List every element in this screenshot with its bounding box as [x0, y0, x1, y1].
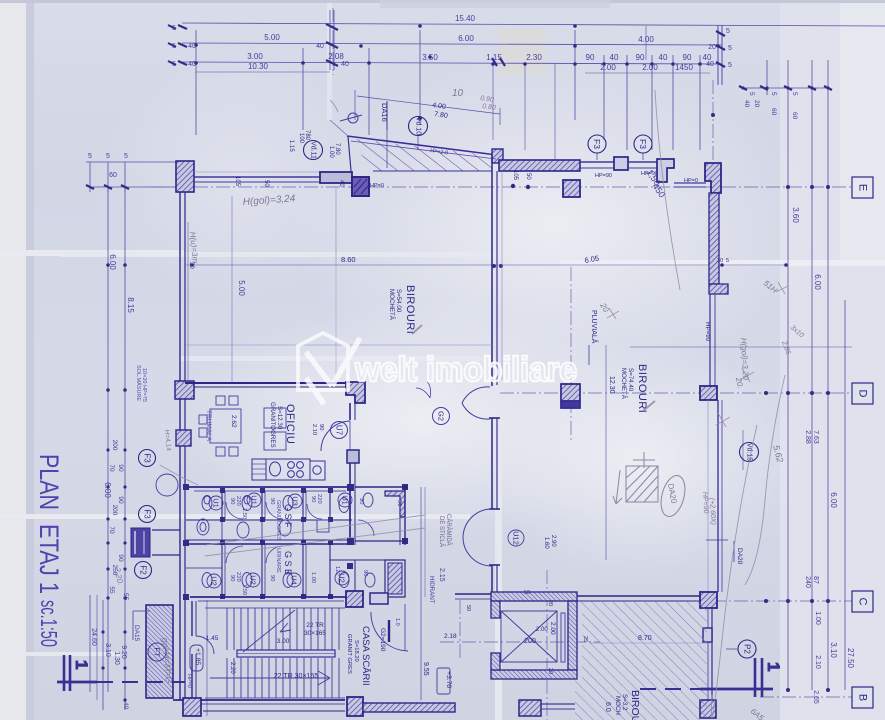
- svg-text:10.30: 10.30: [248, 62, 269, 71]
- svg-text:1.45: 1.45: [206, 635, 219, 642]
- svg-text:40: 40: [338, 180, 344, 187]
- svg-text:sc.1:50: sc.1:50: [36, 600, 62, 647]
- svg-text:20: 20: [547, 668, 553, 674]
- svg-text:8.60: 8.60: [341, 255, 356, 264]
- svg-text:F3: F3: [638, 139, 648, 149]
- svg-text:6.00: 6.00: [813, 274, 822, 290]
- svg-text:F2: F2: [139, 565, 148, 575]
- svg-text:220: 220: [235, 572, 241, 582]
- svg-text:7.80: 7.80: [334, 143, 340, 155]
- svg-text:1: 1: [72, 660, 91, 669]
- svg-text:90: 90: [396, 500, 402, 506]
- svg-text:22 TR 30×165: 22 TR 30×165: [274, 673, 319, 680]
- svg-text:DE STICLĂ: DE STICLĂ: [438, 516, 445, 547]
- svg-text:100: 100: [298, 133, 304, 144]
- svg-text:S=74.40: S=74.40: [627, 368, 634, 392]
- svg-text:S=54.00: S=54.00: [395, 289, 402, 313]
- svg-text:DA20: DA20: [736, 548, 743, 565]
- svg-text:90: 90: [358, 498, 364, 504]
- svg-text:90: 90: [117, 464, 124, 472]
- svg-text:2.88: 2.88: [804, 430, 811, 444]
- svg-text:3.10: 3.10: [104, 643, 111, 657]
- svg-text:5: 5: [791, 92, 798, 96]
- svg-text:BIROURI: BIROURI: [404, 285, 416, 334]
- svg-text:welt imobiliare: welt imobiliare: [354, 351, 577, 389]
- svg-text:40: 40: [188, 61, 196, 68]
- svg-text:MOCH: MOCH: [614, 696, 621, 715]
- svg-text:200: 200: [111, 440, 118, 451]
- svg-text:BIROURI: BIROURI: [629, 690, 641, 720]
- svg-text:HP=90: HP=90: [704, 322, 711, 342]
- svg-text:CĂRĂMIDĂ: CĂRĂMIDĂ: [445, 514, 452, 546]
- svg-text:D: D: [857, 390, 869, 398]
- svg-text:2.20: 2.20: [229, 662, 235, 674]
- svg-text:FT: FT: [153, 647, 162, 657]
- svg-text:90: 90: [586, 53, 595, 62]
- svg-text:5: 5: [124, 153, 128, 160]
- svg-text:HP=90: HP=90: [701, 492, 709, 514]
- svg-text:50: 50: [263, 180, 269, 187]
- svg-text:8.15: 8.15: [126, 297, 135, 313]
- svg-text:U1: U1: [212, 498, 221, 508]
- svg-text:PLAN: PLAN: [34, 454, 64, 510]
- svg-text:HP=0: HP=0: [684, 178, 698, 184]
- svg-text:2.90: 2.90: [550, 535, 556, 547]
- svg-text:U1: U1: [341, 495, 350, 505]
- svg-text:55: 55: [122, 593, 129, 601]
- svg-text:U2: U2: [249, 575, 258, 585]
- svg-text:C: C: [857, 598, 869, 606]
- svg-text:5: 5: [106, 153, 110, 160]
- svg-text:6.00: 6.00: [108, 254, 117, 270]
- svg-text:1.00: 1.00: [328, 146, 334, 158]
- svg-text:2.00: 2.00: [549, 622, 556, 635]
- svg-text:15.40: 15.40: [455, 14, 476, 23]
- svg-text:U4: U4: [290, 575, 299, 585]
- svg-text:2.15: 2.15: [438, 568, 445, 582]
- svg-text:40: 40: [743, 100, 750, 108]
- svg-text:60: 60: [791, 112, 798, 120]
- svg-text:U12: U12: [512, 531, 521, 545]
- svg-text:2.10: 2.10: [311, 424, 317, 435]
- svg-text:2.00: 2.00: [600, 63, 616, 72]
- svg-text:90: 90: [229, 498, 235, 504]
- svg-text:40: 40: [659, 53, 668, 62]
- svg-text:MOCHETĂ: MOCHETĂ: [620, 368, 627, 400]
- svg-text:DA15: DA15: [133, 625, 140, 642]
- svg-text:8.70: 8.70: [638, 635, 652, 642]
- svg-text:3.60: 3.60: [791, 207, 800, 223]
- svg-text:CASA SCĂRII: CASA SCĂRII: [360, 626, 371, 686]
- svg-text:70: 70: [108, 464, 115, 472]
- svg-text:Vd.11: Vd.11: [310, 141, 317, 159]
- svg-text:1.15: 1.15: [486, 53, 502, 62]
- svg-text:5: 5: [728, 62, 732, 69]
- svg-text:1.00: 1.00: [310, 572, 316, 583]
- svg-text:HP=0: HP=0: [370, 183, 384, 189]
- svg-text:122: 122: [334, 566, 340, 576]
- svg-text:10×20 HP=75: 10×20 HP=75: [141, 368, 147, 402]
- svg-text:90: 90: [318, 424, 324, 430]
- svg-text:S=12.30: S=12.30: [276, 406, 283, 430]
- svg-text:2.08: 2.08: [328, 52, 344, 61]
- svg-text:40: 40: [706, 61, 714, 68]
- svg-text:30×165: 30×165: [304, 630, 326, 637]
- svg-text:70: 70: [108, 526, 115, 534]
- svg-text:ETAJ 1: ETAJ 1: [34, 524, 64, 594]
- svg-text:S=3.2: S=3.2: [621, 694, 628, 711]
- svg-text:9.55: 9.55: [422, 662, 429, 676]
- svg-text:90: 90: [117, 554, 124, 562]
- svg-text:40: 40: [610, 53, 619, 62]
- svg-text:2.62: 2.62: [230, 415, 237, 428]
- svg-text:220: 220: [235, 496, 241, 506]
- svg-text:105: 105: [234, 176, 240, 187]
- svg-text:OFICIU: OFICIU: [284, 404, 296, 444]
- svg-text:Vd.10: Vd.10: [415, 117, 422, 135]
- svg-text:6.00: 6.00: [458, 34, 474, 43]
- svg-text:30: 30: [717, 258, 723, 264]
- svg-text:90: 90: [269, 575, 275, 581]
- svg-text:5: 5: [88, 153, 92, 160]
- svg-text:87: 87: [812, 576, 819, 584]
- svg-text:50: 50: [524, 590, 530, 596]
- svg-text:1.50: 1.50: [241, 508, 247, 519]
- svg-text:20: 20: [753, 100, 760, 108]
- svg-text:7.63: 7.63: [812, 430, 819, 444]
- svg-text:B: B: [857, 694, 869, 701]
- svg-text:55: 55: [108, 586, 115, 594]
- svg-text:+3.70: +3.70: [445, 671, 452, 688]
- svg-text:5: 5: [726, 258, 729, 264]
- svg-text:40: 40: [188, 43, 196, 50]
- svg-text:10: 10: [452, 88, 464, 99]
- svg-text:27.50: 27.50: [846, 648, 855, 669]
- svg-text:2.10: 2.10: [814, 655, 821, 669]
- svg-text:5.00: 5.00: [237, 280, 246, 296]
- svg-text:6.00: 6.00: [103, 482, 112, 498]
- svg-text:URINARE: URINARE: [275, 548, 281, 573]
- svg-text:1.15: 1.15: [288, 140, 294, 152]
- svg-text:90: 90: [683, 53, 692, 62]
- svg-text:G2: G2: [437, 411, 446, 421]
- svg-text:4.00: 4.00: [638, 35, 654, 44]
- svg-text:P2: P2: [743, 644, 752, 654]
- svg-text:40: 40: [341, 61, 349, 68]
- svg-text:F3: F3: [143, 453, 152, 463]
- svg-text:2.18: 2.18: [444, 633, 457, 640]
- svg-text:50: 50: [465, 605, 471, 611]
- svg-text:HP=0: HP=0: [186, 674, 192, 688]
- svg-text:F3: F3: [143, 509, 152, 519]
- svg-text:E: E: [857, 184, 869, 191]
- svg-text:780: 780: [304, 130, 310, 141]
- svg-text:MOCHETĂ: MOCHETĂ: [388, 289, 395, 321]
- svg-text:90: 90: [117, 496, 124, 504]
- svg-text:3.00: 3.00: [247, 52, 263, 61]
- svg-text:22 TR: 22 TR: [306, 622, 324, 629]
- svg-text:240: 240: [804, 576, 811, 588]
- svg-text:200: 200: [111, 505, 118, 516]
- svg-text:G2=190: G2=190: [379, 628, 386, 652]
- svg-text:5: 5: [748, 92, 755, 96]
- svg-text:1.60: 1.60: [543, 537, 549, 549]
- svg-text:5: 5: [726, 28, 730, 35]
- svg-text:90: 90: [310, 496, 316, 502]
- svg-text:1.30: 1.30: [113, 651, 120, 665]
- svg-text:HP=90: HP=90: [595, 173, 612, 179]
- svg-text:1.0: 1.0: [394, 618, 400, 626]
- svg-text:G S B: G S B: [283, 551, 293, 575]
- svg-text:SOL.MĂSURE: SOL.MĂSURE: [135, 365, 142, 401]
- svg-text:5: 5: [728, 45, 732, 52]
- svg-text:220: 220: [316, 494, 322, 504]
- svg-text:1: 1: [764, 662, 783, 671]
- svg-text:+1.85: +1.85: [194, 648, 201, 665]
- svg-text:60: 60: [109, 172, 117, 179]
- svg-text:F3: F3: [592, 139, 602, 149]
- svg-text:50: 50: [525, 173, 531, 180]
- svg-text:2.00: 2.00: [642, 63, 658, 72]
- svg-text:HIDRANT: HIDRANT: [428, 576, 435, 604]
- svg-text:3.00: 3.00: [277, 638, 290, 645]
- svg-text:6.0: 6.0: [604, 702, 611, 712]
- svg-text:20: 20: [547, 600, 553, 606]
- svg-text:90: 90: [636, 53, 645, 62]
- svg-text:200: 200: [524, 638, 536, 645]
- svg-text:G S F: G S F: [283, 504, 293, 528]
- svg-text:1450: 1450: [675, 63, 693, 72]
- svg-text:40: 40: [316, 43, 324, 50]
- svg-text:GRANIT GRES: GRANIT GRES: [346, 634, 352, 674]
- svg-text:3.50: 3.50: [422, 53, 438, 62]
- svg-text:2.65: 2.65: [812, 690, 819, 704]
- svg-text:12.30: 12.30: [608, 376, 615, 394]
- svg-text:5: 5: [770, 92, 777, 96]
- svg-text:U7: U7: [335, 425, 344, 436]
- svg-text:DA16: DA16: [380, 103, 389, 122]
- svg-text:BIROURI: BIROURI: [636, 364, 648, 413]
- svg-text:1.00: 1.00: [814, 611, 821, 625]
- svg-text:40: 40: [122, 702, 129, 710]
- svg-text:GRANITOGRES: GRANITOGRES: [269, 402, 276, 448]
- svg-text:U1: U1: [250, 495, 259, 505]
- svg-text:1.50: 1.50: [241, 584, 247, 595]
- svg-text:U2: U2: [210, 576, 219, 586]
- svg-text:90: 90: [362, 570, 368, 576]
- svg-text:(+2.60X): (+2.60X): [708, 498, 716, 525]
- svg-text:20: 20: [708, 44, 716, 51]
- svg-text:PLUVIALĂ: PLUVIALĂ: [590, 310, 599, 344]
- svg-text:90: 90: [269, 498, 275, 504]
- svg-text:3.10: 3.10: [829, 642, 838, 658]
- svg-text:2.00: 2.00: [536, 627, 548, 633]
- svg-text:60: 60: [770, 108, 777, 116]
- svg-text:6.00: 6.00: [829, 492, 838, 508]
- svg-text:TRUMALA: TRUMALA: [205, 410, 212, 442]
- svg-text:90: 90: [229, 575, 235, 581]
- svg-text:2.30: 2.30: [526, 53, 542, 62]
- svg-text:5.00: 5.00: [264, 33, 280, 42]
- svg-text:105: 105: [512, 170, 518, 181]
- svg-text:24.60: 24.60: [90, 628, 97, 646]
- svg-text:S=18.20: S=18.20: [353, 640, 359, 662]
- svg-text:9.20: 9.20: [120, 645, 127, 659]
